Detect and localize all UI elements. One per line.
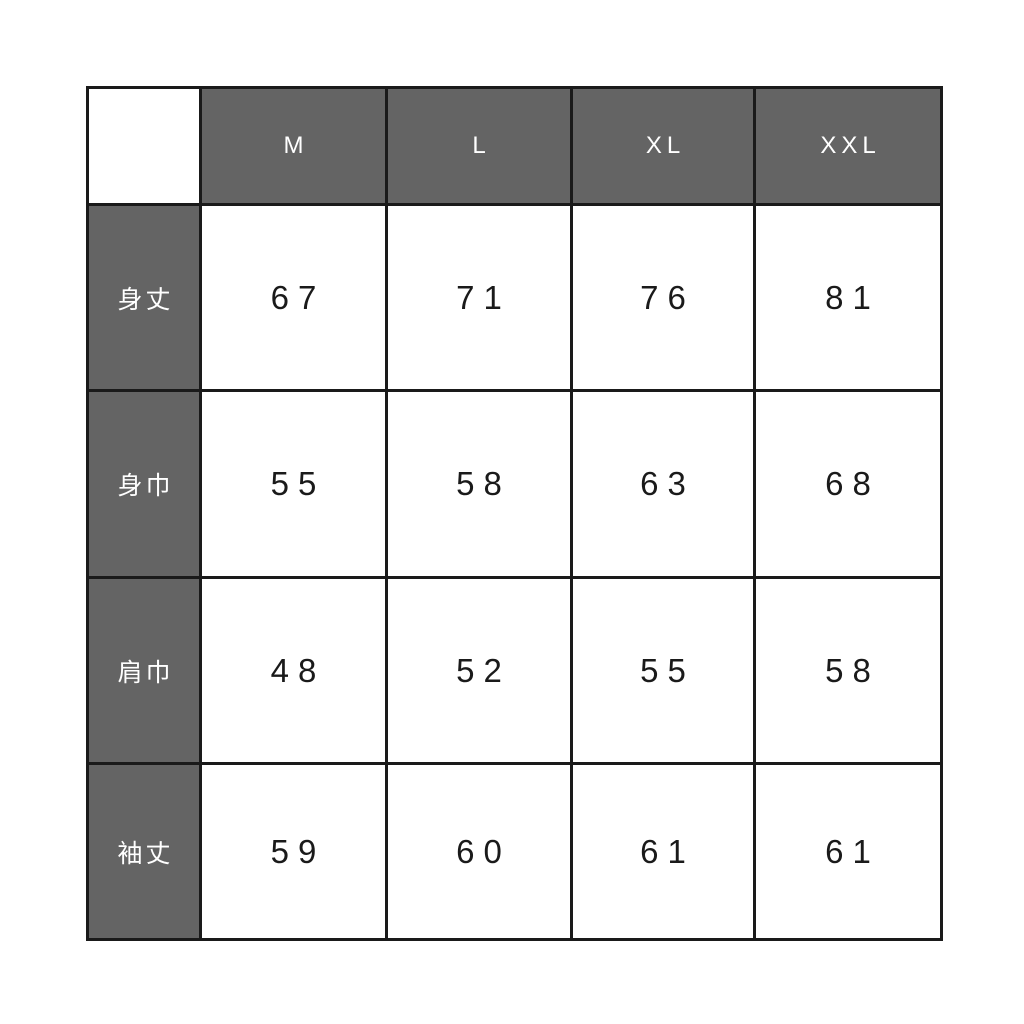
table-row: 袖丈 59 60 61 61 (88, 764, 942, 940)
row-header-shoulder-width: 肩巾 (88, 578, 201, 764)
size-value-cell: 60 (387, 764, 572, 940)
column-header-xl: XL (572, 88, 755, 205)
size-value-cell: 58 (387, 391, 572, 578)
header-row: M L XL XXL (88, 88, 942, 205)
size-value-cell: 63 (572, 391, 755, 578)
size-value-cell: 76 (572, 205, 755, 391)
size-chart-table: M L XL XXL 身丈 67 71 76 81 身巾 55 58 63 68… (86, 86, 943, 941)
size-value-cell: 61 (755, 764, 942, 940)
row-header-body-length: 身丈 (88, 205, 201, 391)
row-header-sleeve-length: 袖丈 (88, 764, 201, 940)
size-value-cell: 67 (201, 205, 387, 391)
size-value-cell: 58 (755, 578, 942, 764)
size-value-cell: 81 (755, 205, 942, 391)
row-header-body-width: 身巾 (88, 391, 201, 578)
size-value-cell: 55 (201, 391, 387, 578)
table-row: 肩巾 48 52 55 58 (88, 578, 942, 764)
corner-spacer (88, 88, 201, 205)
size-value-cell: 48 (201, 578, 387, 764)
column-header-xxl: XXL (755, 88, 942, 205)
size-value-cell: 61 (572, 764, 755, 940)
column-header-l: L (387, 88, 572, 205)
size-value-cell: 71 (387, 205, 572, 391)
table-row: 身巾 55 58 63 68 (88, 391, 942, 578)
column-header-m: M (201, 88, 387, 205)
size-value-cell: 68 (755, 391, 942, 578)
table-row: 身丈 67 71 76 81 (88, 205, 942, 391)
page: M L XL XXL 身丈 67 71 76 81 身巾 55 58 63 68… (0, 0, 1024, 1024)
size-value-cell: 59 (201, 764, 387, 940)
size-value-cell: 55 (572, 578, 755, 764)
size-value-cell: 52 (387, 578, 572, 764)
